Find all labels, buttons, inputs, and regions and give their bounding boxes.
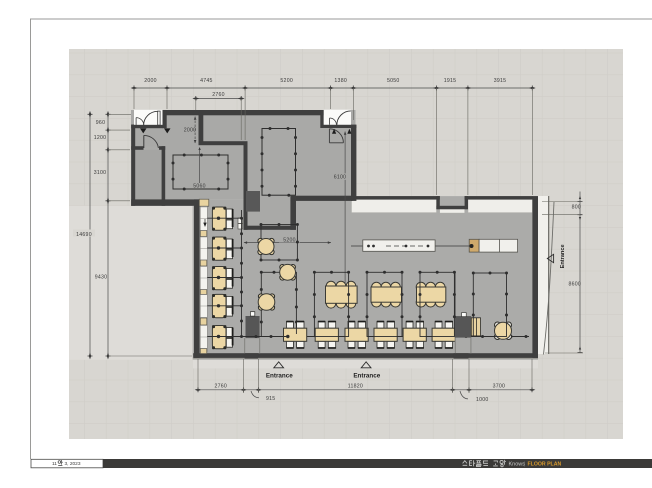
svg-text:FLOOR PLAN: FLOOR PLAN [528,462,562,468]
svg-text:14690: 14690 [76,232,92,238]
svg-text:3100: 3100 [94,170,107,176]
svg-text:1000: 1000 [476,397,489,403]
svg-text:4745: 4745 [200,78,213,84]
svg-text:11: 11 [52,461,57,467]
svg-text:11820: 11820 [348,384,363,390]
svg-text:915: 915 [266,396,275,402]
svg-text:2760: 2760 [215,384,228,390]
svg-text:5050: 5050 [387,78,400,84]
svg-text:3700: 3700 [493,384,506,390]
svg-text:1200: 1200 [94,135,107,141]
svg-text:1915: 1915 [444,78,457,84]
svg-text:5200: 5200 [283,238,296,244]
svg-text:9430: 9430 [95,275,108,281]
svg-text:Entrance: Entrance [353,373,380,380]
svg-text:2000: 2000 [184,128,197,134]
svg-text:2760: 2760 [212,92,225,98]
svg-text:6100: 6100 [334,175,347,181]
svg-text:1380: 1380 [334,78,347,84]
svg-text:960: 960 [96,120,105,126]
svg-text:5060: 5060 [193,184,206,190]
svg-text:Entrance: Entrance [560,244,566,268]
svg-text:8600: 8600 [568,282,581,288]
svg-text:Entrance: Entrance [266,373,293,380]
svg-text:|: | [524,462,525,468]
svg-text:3915: 3915 [494,78,507,84]
svg-text:5200: 5200 [280,78,293,84]
svg-text:3, 2023: 3, 2023 [65,461,81,467]
svg-text:800: 800 [572,204,581,210]
svg-text:2000: 2000 [144,78,157,84]
